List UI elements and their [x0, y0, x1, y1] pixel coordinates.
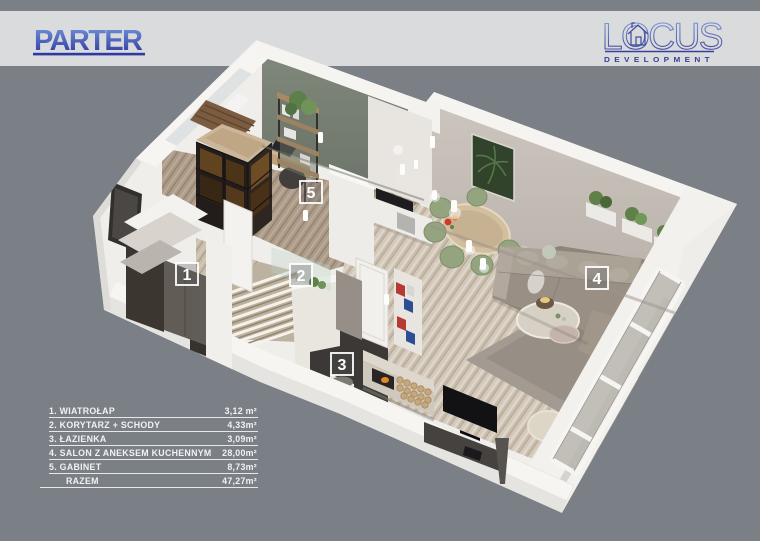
- svg-text:5. GABINET: 5. GABINET: [49, 462, 102, 472]
- svg-text:5: 5: [307, 185, 316, 202]
- svg-text:28,00m²: 28,00m²: [222, 448, 257, 458]
- svg-text:3,09m²: 3,09m²: [227, 434, 257, 444]
- svg-text:3,12 m²: 3,12 m²: [225, 406, 257, 416]
- svg-text:1. WIATROŁAP: 1. WIATROŁAP: [49, 406, 115, 416]
- svg-text:4. SALON Z ANEKSEM KUCHENNYM: 4. SALON Z ANEKSEM KUCHENNYM: [49, 448, 212, 458]
- svg-text:PARTER: PARTER: [34, 25, 143, 57]
- svg-text:8,73m²: 8,73m²: [227, 462, 257, 472]
- svg-text:47,27m²: 47,27m²: [222, 476, 257, 486]
- svg-text:4,33m²: 4,33m²: [227, 420, 257, 430]
- svg-text:4: 4: [593, 271, 602, 288]
- svg-text:2: 2: [297, 268, 306, 285]
- svg-text:DEVELOPMENT: DEVELOPMENT: [604, 55, 714, 64]
- svg-text:3: 3: [338, 357, 347, 374]
- svg-text:3. ŁAZIENKA: 3. ŁAZIENKA: [49, 434, 107, 444]
- svg-text:2. KORYTARZ + SCHODY: 2. KORYTARZ + SCHODY: [49, 420, 160, 430]
- svg-text:1: 1: [183, 267, 192, 284]
- svg-text:RAZEM: RAZEM: [66, 476, 99, 486]
